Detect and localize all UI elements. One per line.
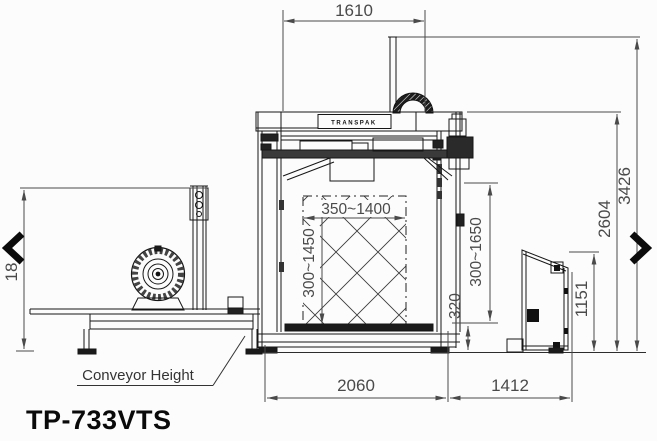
machine-body (30, 37, 646, 354)
left-column (258, 112, 284, 348)
machine-base (258, 324, 460, 353)
carousel-prev-icon[interactable] (7, 234, 22, 262)
dim-right-width: 1412 (491, 376, 529, 395)
strap-guide-post (388, 37, 398, 112)
control-cabinet (507, 250, 568, 353)
dim-body-height: 2604 (595, 200, 614, 238)
conveyor-height-label: Conveyor Height (82, 367, 195, 384)
machine-diagram: 1610 3426 2604 1151 18 2060 1412 350~140… (0, 0, 657, 441)
dim-cabinet-height: 1151 (572, 281, 591, 318)
dim-left-height: 18 (2, 263, 21, 282)
infeed-conveyor (30, 297, 262, 354)
dim-pack-width: 350~1400 (321, 201, 391, 218)
dim-top-width: 1610 (335, 1, 373, 20)
tensioner-mast (190, 186, 208, 310)
strap-arch (393, 93, 433, 113)
carousel-next-icon[interactable] (632, 234, 647, 262)
technical-drawing-page: 1610 3426 2604 1151 18 2060 1412 350~140… (0, 0, 657, 441)
model-title: TP-733VTS (26, 405, 172, 435)
dim-base-width: 2060 (337, 376, 375, 395)
strap-coil (132, 246, 185, 310)
dim-table-height: 320 (447, 293, 464, 319)
dim-total-height: 3426 (615, 167, 634, 205)
dim-pack-height-outer: 300~1650 (468, 217, 485, 287)
dim-pack-height-inner: 300~1450 (301, 228, 318, 298)
press-head (262, 136, 458, 181)
brand-plate-label: TRANSPAK (331, 121, 377, 127)
